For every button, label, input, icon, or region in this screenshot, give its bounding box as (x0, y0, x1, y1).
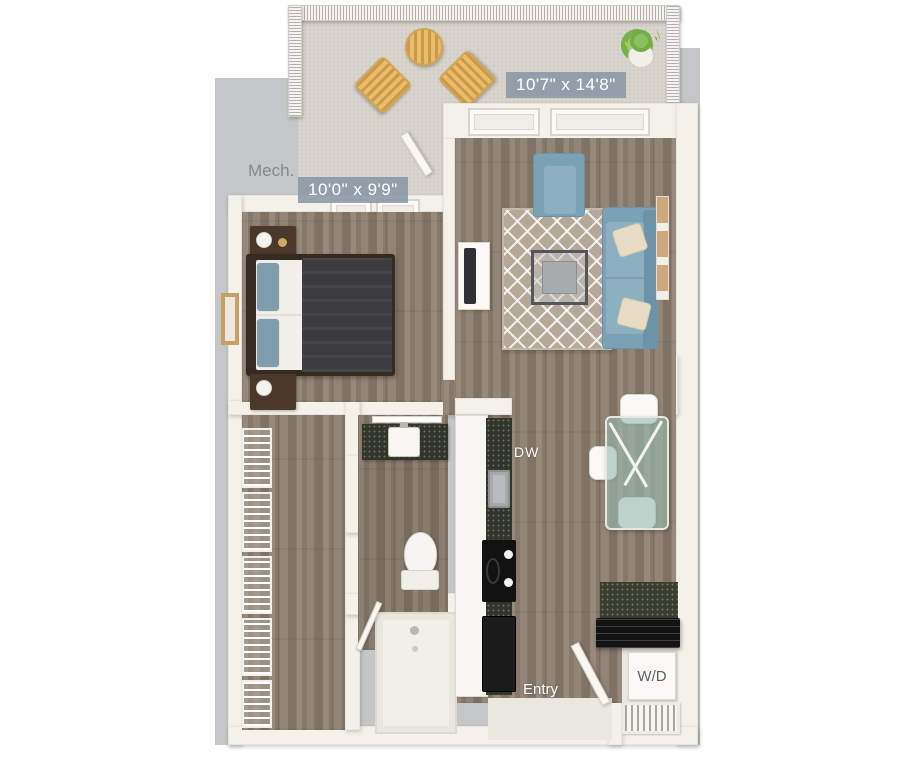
shower (375, 612, 457, 734)
washer-dryer-unit: W/D (628, 652, 676, 700)
stove-knob (504, 578, 513, 587)
balcony-railing-right (666, 5, 680, 107)
left-outer-wall (228, 195, 242, 745)
bed (246, 254, 395, 376)
outdoor-table (405, 28, 443, 66)
wire-shelving (242, 556, 272, 614)
balcony-railing-top (288, 5, 680, 21)
coffee-table (531, 250, 588, 305)
plant-foliage (626, 30, 656, 52)
bed-pillow (256, 262, 280, 312)
bedroom-dimension-label: 10'0" x 9'9" (298, 177, 408, 203)
living-room-window (550, 108, 650, 136)
entry-label: Entry (523, 681, 558, 698)
vanity-faucet (400, 422, 408, 428)
armchair (533, 153, 585, 217)
tv (464, 248, 476, 304)
stove-burner (486, 558, 500, 584)
wire-shelving (242, 680, 272, 728)
bedroom-doorway-floor (443, 380, 455, 415)
dining-table (605, 416, 669, 530)
mechanical-room-label: Mech. (248, 161, 294, 181)
stove (482, 540, 516, 602)
kitchen-sink (488, 470, 510, 508)
living-room-window (468, 108, 540, 136)
stove-knob (504, 550, 513, 559)
dishwasher-label: DW (514, 444, 539, 460)
bed-pillow (256, 318, 280, 368)
armchair-seat (544, 166, 576, 214)
shower-drain (412, 646, 418, 652)
bookshelf (656, 196, 669, 300)
picture-frame (221, 293, 239, 345)
sofa (602, 207, 658, 349)
vanity-sink (388, 427, 420, 457)
washer-dryer-label: W/D (637, 668, 666, 685)
coffee-table-top (542, 261, 577, 294)
balcony-railing-left (288, 5, 302, 117)
refrigerator (482, 616, 516, 692)
table-lamp (256, 232, 272, 248)
desk-backsplash (600, 582, 678, 620)
right-outer-wall (676, 103, 698, 745)
desk-counter (596, 618, 680, 648)
living-bedroom-wall (443, 138, 455, 380)
wire-shelving (242, 618, 272, 676)
wire-shelving (242, 492, 272, 552)
table-lamp (256, 380, 272, 396)
louver-vent (622, 702, 680, 734)
bed-comforter (302, 258, 392, 372)
toilet-tank (401, 570, 439, 590)
kitchen-top-wall (455, 398, 512, 415)
living-room-dimension-label: 10'7" x 14'8" (506, 72, 626, 98)
floor-plan: W/D 10'7" x 14'8" 10'0" x 9'9" Mech. DW … (0, 0, 921, 768)
wire-shelving (242, 428, 272, 488)
entry-vestibule-floor (488, 698, 612, 740)
nightstand-decor (278, 238, 287, 247)
shower-head-icon (410, 626, 419, 635)
